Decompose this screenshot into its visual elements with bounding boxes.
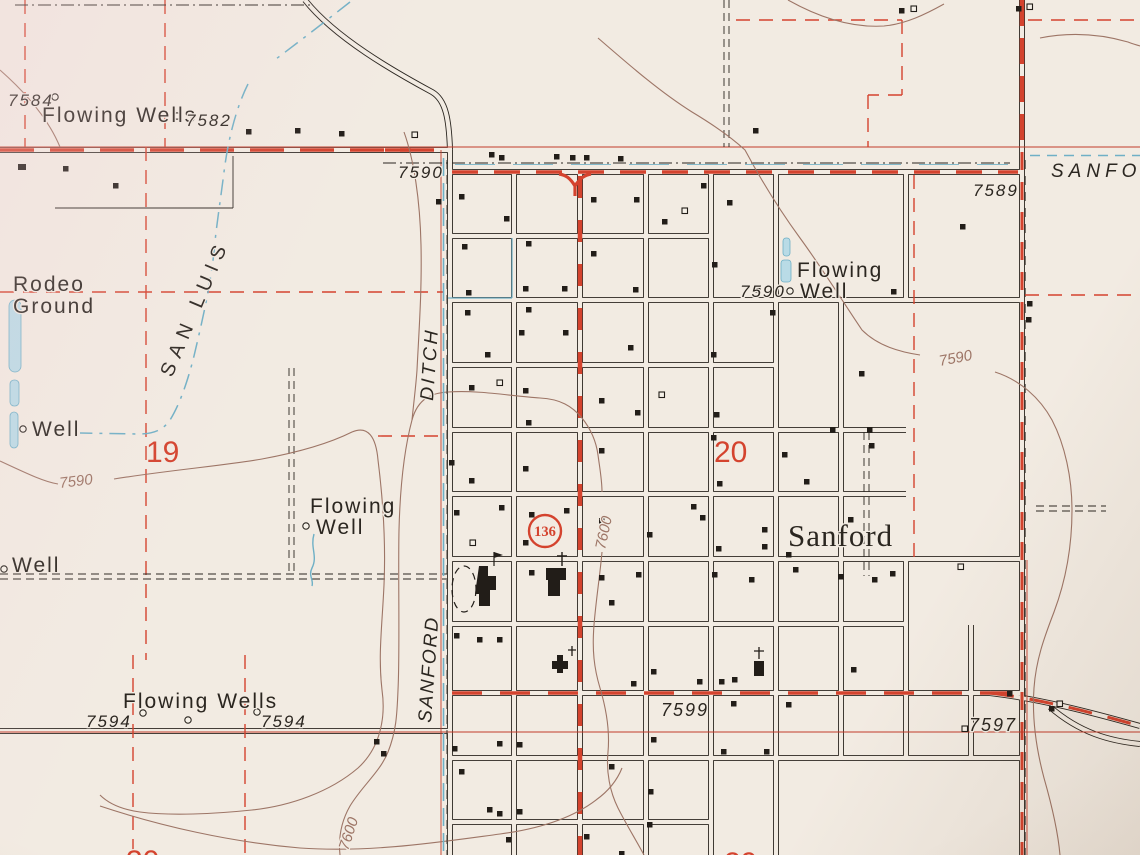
route-shield-136: 136	[529, 515, 561, 547]
label-well-c: Well	[316, 516, 364, 539]
section-19: 19	[146, 436, 179, 469]
section-29: 29	[724, 847, 757, 855]
cross-icon	[568, 646, 576, 656]
telephone-lines	[15, 5, 1010, 163]
label-flowing-wells-s: Flowing Wells	[123, 690, 278, 713]
church-building-2	[754, 661, 764, 676]
label-san-luis: SAN LUIS	[156, 236, 234, 380]
junction-y	[559, 174, 591, 196]
contour-label-7590-e: 7590	[938, 347, 975, 370]
label-7599: 7599	[661, 700, 709, 720]
label-flowing-ne: Flowing	[797, 259, 883, 282]
field-lines	[55, 156, 233, 208]
label-sanford-ditch: SANFORD	[415, 615, 443, 723]
label-flowing-c: Flowing	[310, 495, 396, 518]
label-town-sanford: Sanford	[788, 518, 893, 553]
label-7594-left: 7594	[86, 712, 132, 731]
well-icon	[787, 288, 793, 294]
route-shield-number: 136	[534, 524, 556, 540]
well-symbols	[1, 94, 793, 723]
building	[18, 164, 26, 170]
label-7594-right: 7594	[261, 712, 307, 731]
well-icon	[1, 566, 7, 572]
san-luis-stream	[80, 2, 350, 434]
contour-label-7590-w: 7590	[58, 471, 94, 492]
church-cross-icon-2	[754, 647, 764, 659]
label-rodeo: Rodeo	[13, 273, 85, 296]
label-7589: 7589	[973, 181, 1019, 200]
topo-map: 136 Flowing Wells 7584 7582 Rodeo Ground…	[0, 0, 1140, 855]
label-well-ne: Well	[800, 280, 848, 303]
contour-label-7600-s: 7600	[336, 815, 363, 853]
label-7597: 7597	[969, 715, 1017, 735]
section-numbers: 19 20 30 29	[126, 436, 757, 855]
map-canvas: 136 Flowing Wells 7584 7582 Rodeo Ground…	[0, 0, 1140, 855]
label-7584: 7584	[8, 91, 54, 110]
label-7590-top: 7590	[398, 163, 444, 182]
large-building	[552, 655, 568, 673]
label-ditch: DITCH	[417, 327, 443, 401]
well-icon	[20, 426, 26, 432]
section-20: 20	[714, 436, 747, 469]
section-30: 30	[126, 845, 159, 855]
label-sanfor-road: SANFOR	[1051, 161, 1140, 182]
contour-label-7600-mid: 7600	[592, 514, 616, 551]
label-ground: Ground	[13, 295, 95, 318]
label-well-west: Well	[32, 418, 80, 441]
pond-polygons	[9, 238, 791, 448]
label-7582: 7582	[186, 111, 232, 130]
well-icon	[185, 717, 191, 723]
well-icon	[303, 523, 309, 529]
landmark-buildings	[452, 552, 764, 676]
school-building	[475, 566, 496, 606]
label-flowing-wells-nw: Flowing Wells	[42, 104, 197, 127]
label-well-sw: Well	[12, 554, 60, 577]
label-7590-ne: 7590	[740, 282, 786, 301]
church-building	[546, 568, 566, 596]
track-oval	[452, 566, 476, 612]
